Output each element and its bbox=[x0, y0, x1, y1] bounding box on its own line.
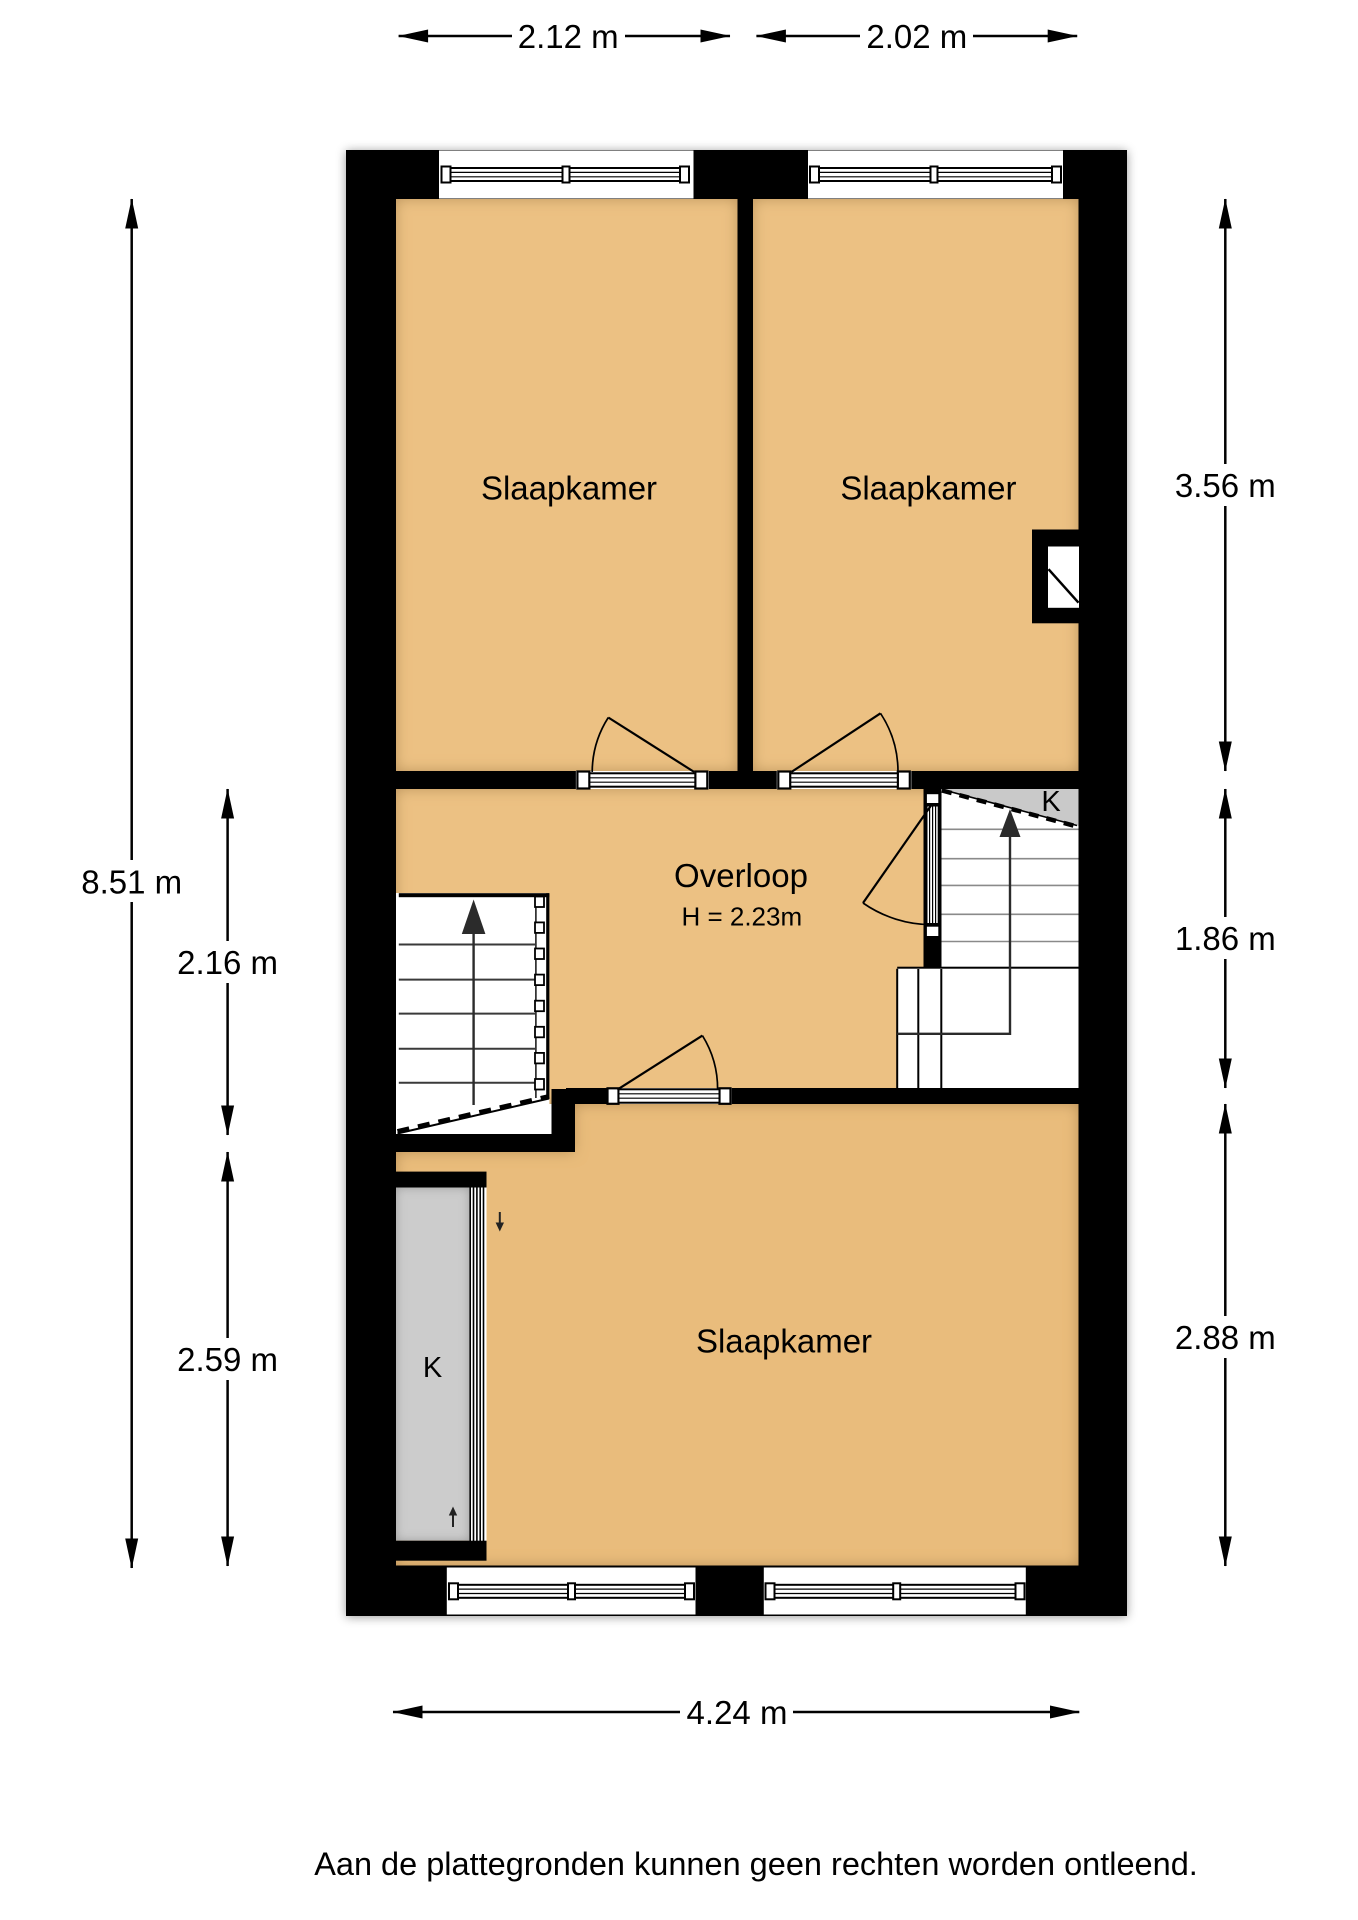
svg-text:4.24 m: 4.24 m bbox=[687, 1694, 788, 1731]
svg-text:H = 2.23m: H = 2.23m bbox=[681, 902, 802, 932]
svg-text:Aan de plattegronden kunnen ge: Aan de plattegronden kunnen geen rechten… bbox=[314, 1846, 1198, 1882]
svg-text:K: K bbox=[1041, 786, 1061, 818]
svg-text:K: K bbox=[423, 1352, 443, 1384]
svg-text:8.51 m: 8.51 m bbox=[81, 864, 182, 901]
svg-text:Slaapkamer: Slaapkamer bbox=[696, 1323, 872, 1360]
svg-text:2.88 m: 2.88 m bbox=[1175, 1319, 1276, 1356]
svg-text:Overloop: Overloop bbox=[674, 857, 808, 894]
svg-text:2.59 m: 2.59 m bbox=[177, 1341, 278, 1378]
svg-text:2.12 m: 2.12 m bbox=[518, 18, 619, 55]
svg-text:2.16 m: 2.16 m bbox=[177, 944, 278, 981]
svg-text:Slaapkamer: Slaapkamer bbox=[840, 469, 1016, 506]
svg-text:2.02 m: 2.02 m bbox=[866, 18, 967, 55]
svg-text:1.86 m: 1.86 m bbox=[1175, 920, 1276, 957]
svg-text:Slaapkamer: Slaapkamer bbox=[481, 469, 657, 506]
svg-text:3.56 m: 3.56 m bbox=[1175, 467, 1276, 504]
